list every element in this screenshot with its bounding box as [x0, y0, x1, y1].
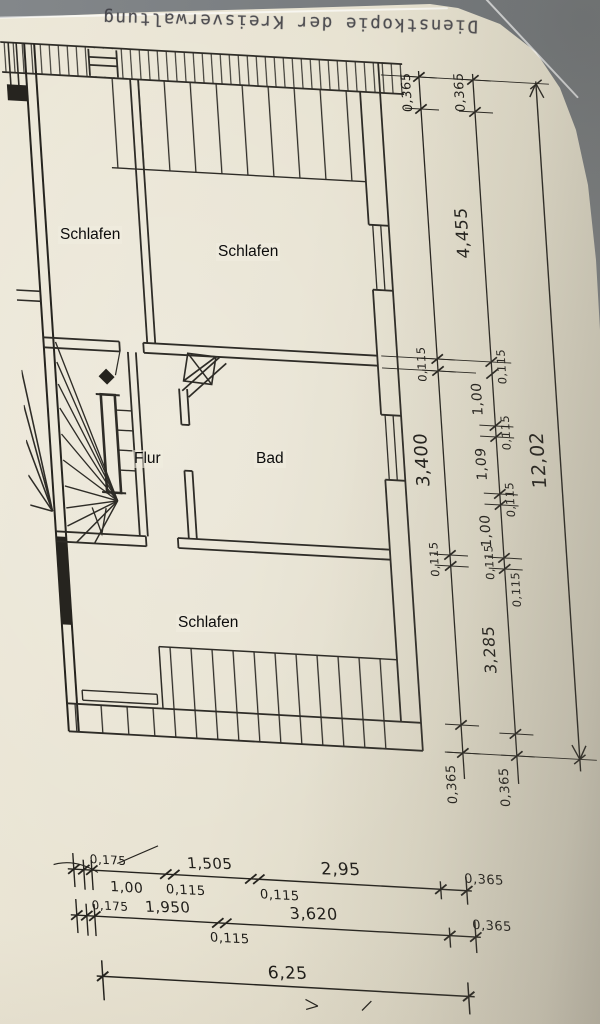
dim-label: 0,365 [444, 764, 462, 805]
room-label-flur: Flur [132, 450, 163, 468]
door-swing-marker [92, 507, 108, 534]
dim-label: 1,00 [110, 879, 144, 897]
room-label-schlafen-3: Schlafen [176, 614, 240, 632]
floor-plan-photo: Dienstkopie der Kreisverwaltung [0, 0, 600, 1024]
dim-label: 0,115 [209, 930, 250, 947]
bottom-dimension-line-2-labels: 0,175 1,950 3,620 0,365 0,115 [91, 891, 514, 962]
dim-label: 0,115 [259, 887, 300, 904]
dimension-chain-total [529, 79, 588, 772]
dim-label: 0,115 [508, 571, 524, 607]
dim-label: 1,950 [144, 898, 191, 917]
dim-label: 1,505 [186, 854, 233, 873]
dimension-chain-inner [403, 70, 483, 780]
dim-label: 0,115 [502, 481, 518, 517]
lower-roof-slope-and-bottom-wall [63, 641, 423, 750]
right-exterior-wall [358, 62, 423, 751]
dim-label: 0,115 [165, 882, 206, 899]
dim-label-total-height: 12,02 [526, 431, 552, 489]
dim-label: 2,95 [320, 859, 362, 880]
bottom-dimension-line-2 [70, 899, 483, 958]
dim-label: 4,455 [451, 207, 474, 259]
dim-label: 0,115 [493, 348, 509, 384]
floor-plan-drawing: 0,365 0,115 3,400 0,115 0,365 0,365 4,45… [0, 40, 600, 1024]
dim-label: 0,115 [413, 346, 429, 382]
bath-walls [179, 389, 197, 539]
dim-label: 0,365 [497, 767, 515, 808]
dim-label: 3,400 [410, 432, 434, 487]
dim-label: 0,115 [481, 544, 497, 580]
dim-label: 1,00 [477, 514, 495, 548]
plan-svg: 0,365 0,115 3,400 0,115 0,365 0,365 4,45… [0, 40, 600, 1024]
dim-label: 1,00 [469, 382, 487, 416]
dim-label: 3,620 [289, 904, 339, 924]
dim-label-total-width: 6,25 [267, 963, 309, 984]
room-label-bad: Bad [254, 450, 286, 468]
dim-label: 0,175 [89, 852, 127, 868]
newel-diamond-marker [98, 368, 115, 385]
dim-label: 0,115 [426, 541, 442, 577]
dim-label: 0,175 [91, 898, 129, 914]
room-label-schlafen-1: Schlafen [58, 226, 122, 244]
dim-label: 0,365 [451, 72, 469, 113]
dim-label: 0,365 [472, 918, 513, 935]
dim-label: 0,365 [464, 872, 505, 889]
dim-label: 0,365 [399, 72, 417, 113]
roof-slope-hatch-top [106, 78, 366, 182]
room-label-schlafen-2: Schlafen [216, 243, 280, 261]
staircase [56, 342, 149, 546]
dim-label: 1,09 [473, 447, 491, 481]
stray-mark [306, 1005, 318, 1010]
stray-mark [305, 999, 317, 1006]
stray-mark [361, 1001, 372, 1012]
dim-label: 3,285 [478, 625, 500, 674]
lower-bedroom-top-wall [56, 531, 391, 559]
bottom-dimension-line-3-labels: 6,25 [267, 962, 309, 986]
dim-label: 0,115 [498, 414, 514, 450]
